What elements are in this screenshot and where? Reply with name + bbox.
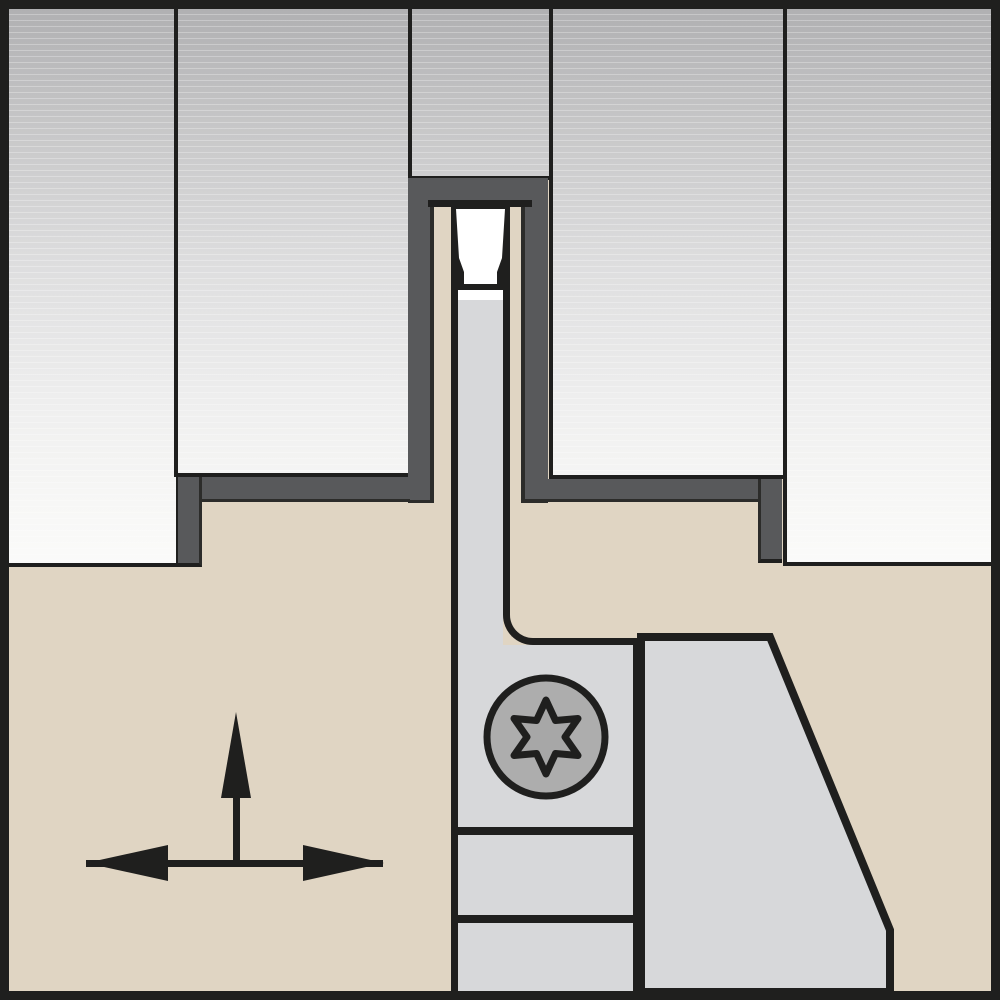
cut-edge-left-strip — [178, 477, 202, 567]
arrow-right-icon — [303, 845, 384, 881]
arrow-up-icon — [221, 712, 251, 798]
workpiece-panel-1 — [4, 8, 180, 567]
cut-edge-slot-wall-left — [408, 203, 430, 503]
clamp-column-divider-2 — [451, 915, 633, 923]
workpiece-panel-5 — [783, 8, 996, 566]
workpiece-panel-2 — [174, 8, 416, 477]
cut-edge-left-band — [178, 477, 410, 502]
cut-edge-slot-wall-right — [525, 203, 548, 503]
cut-edge-right-band — [525, 479, 782, 502]
pocket-line-left — [451, 203, 458, 992]
feed-direction-arrows — [60, 690, 400, 890]
insert — [445, 195, 515, 295]
clamp-block-shape — [641, 637, 890, 992]
diagram-canvas — [0, 0, 1000, 1000]
clamp-block — [629, 628, 896, 1000]
workpiece-panel-4 — [549, 8, 791, 479]
body-pocket-corner — [503, 503, 641, 645]
clamp-screw — [476, 667, 616, 807]
cut-edge-right-strip — [758, 479, 782, 563]
arrow-left-icon — [86, 845, 168, 881]
arrow-up-shaft — [233, 790, 240, 864]
workpiece-panel-3 — [408, 8, 557, 180]
clamp-column-divider-1 — [451, 827, 633, 835]
